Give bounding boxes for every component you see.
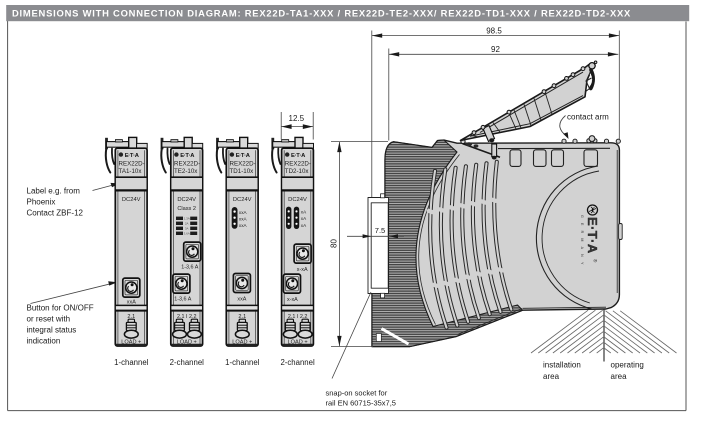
svg-text:xxA: xxA <box>239 223 248 228</box>
svg-text:1-3,6 A: 1-3,6 A <box>181 265 198 271</box>
svg-text:x-xA: x-xA <box>287 297 298 303</box>
svg-text:operating: operating <box>611 361 644 370</box>
svg-text:Class 2: Class 2 <box>177 206 196 212</box>
svg-text:area: area <box>611 372 628 381</box>
svg-text:contact arm: contact arm <box>567 113 609 122</box>
svg-text:Contact ZBF-12: Contact ZBF-12 <box>27 209 84 218</box>
svg-text:Button for ON/OFF: Button for ON/OFF <box>27 304 94 313</box>
svg-text:TA1-10x: TA1-10x <box>119 168 143 175</box>
svg-text:REX22D-: REX22D- <box>119 161 145 168</box>
svg-text:E·T·A: E·T·A <box>125 153 140 159</box>
svg-text:xxA: xxA <box>237 297 246 303</box>
svg-text:or reset with: or reset with <box>27 315 71 324</box>
svg-text:DC24V: DC24V <box>122 197 141 203</box>
svg-text:2-channel: 2-channel <box>280 358 315 367</box>
svg-text:DC24V: DC24V <box>288 197 307 203</box>
svg-text:LOAD +: LOAD + <box>177 339 197 345</box>
svg-text:xxA: xxA <box>239 216 248 221</box>
svg-text:1-3,6 A: 1-3,6 A <box>174 297 191 303</box>
svg-text:1-channel: 1-channel <box>225 358 260 367</box>
svg-text:xA: xA <box>301 223 307 228</box>
svg-text:LOAD +: LOAD + <box>288 339 308 345</box>
svg-text:xA: xA <box>301 216 307 221</box>
svg-text:98.5: 98.5 <box>486 26 502 35</box>
svg-text:DC24V: DC24V <box>233 197 252 203</box>
svg-text:92: 92 <box>491 45 500 54</box>
svg-text:80: 80 <box>330 239 339 248</box>
svg-text:snap-on socket for: snap-on socket for <box>326 389 388 398</box>
svg-text:1-channel: 1-channel <box>114 358 149 367</box>
svg-text:TD2-10x: TD2-10x <box>285 168 310 175</box>
svg-text:E·T·A: E·T·A <box>291 153 306 159</box>
svg-text:rail EN 60715-35x7,5: rail EN 60715-35x7,5 <box>326 399 396 408</box>
svg-text:x-xA: x-xA <box>297 267 308 273</box>
svg-text:E·T·A: E·T·A <box>585 217 600 254</box>
svg-text:REX22D-: REX22D- <box>174 161 200 168</box>
svg-text:integral status: integral status <box>27 326 77 335</box>
svg-text:Label e.g. from: Label e.g. from <box>27 187 81 196</box>
svg-text:area: area <box>543 372 560 381</box>
svg-text:7.5: 7.5 <box>375 226 385 235</box>
svg-text:xxA: xxA <box>239 210 248 215</box>
svg-text:LOAD +: LOAD + <box>232 339 252 345</box>
svg-text:Phoenix: Phoenix <box>27 198 56 207</box>
svg-text:E·T·A: E·T·A <box>236 153 251 159</box>
svg-text:TD1-10x: TD1-10x <box>230 168 255 175</box>
svg-text:xA: xA <box>301 210 307 215</box>
svg-text:DC24V: DC24V <box>177 197 196 203</box>
svg-text:TE2-10x: TE2-10x <box>174 168 198 175</box>
svg-text:REX22D-: REX22D- <box>285 161 311 168</box>
svg-text:LOAD +: LOAD + <box>121 339 141 345</box>
svg-text:installation: installation <box>543 361 581 370</box>
svg-text:2-channel: 2-channel <box>170 358 205 367</box>
svg-text:E·T·A: E·T·A <box>180 153 195 159</box>
svg-text:REX22D-: REX22D- <box>230 161 256 168</box>
svg-text:1,3A: 1,3A <box>184 217 190 221</box>
svg-text:12.5: 12.5 <box>289 114 305 123</box>
svg-text:DIMENSIONS WITH CONNECTION DIA: DIMENSIONS WITH CONNECTION DIAGRAM: REX2… <box>12 8 631 19</box>
svg-text:GERMANY: GERMANY <box>580 215 584 270</box>
svg-text:2A: 2A <box>185 222 189 226</box>
svg-text:3,6A: 3,6A <box>184 232 190 236</box>
svg-text:3A: 3A <box>185 227 189 231</box>
svg-text:indication: indication <box>27 337 61 346</box>
